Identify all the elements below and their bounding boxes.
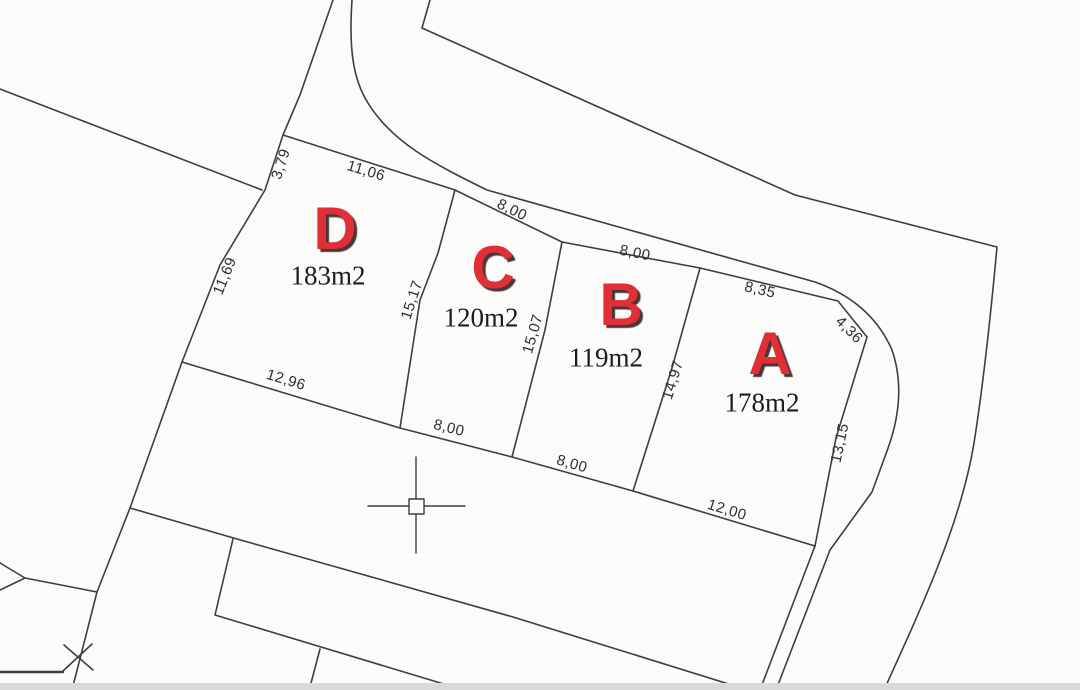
dim-side-ba: 14,97: [659, 358, 687, 401]
dim-bottom-d: 12,96: [264, 366, 307, 394]
dim-right-a: 13,15: [828, 422, 853, 465]
dim-bottom-a: 12,00: [705, 496, 748, 524]
parcel-area-c: 120m2: [443, 305, 518, 332]
plan-labels: A 178m2 B 119m2 C 120m2 D 183m2 3,79 11,…: [0, 0, 1080, 690]
dim-top-a: 8,35: [743, 278, 777, 302]
parcel-letter-a: A: [748, 324, 791, 384]
dim-left-d: 11,69: [210, 255, 240, 297]
cadastral-site-plan: A 178m2 B 119m2 C 120m2 D 183m2 3,79 11,…: [0, 0, 1080, 690]
parcel-letter-c: C: [471, 238, 514, 298]
parcel-area-d: 183m2: [290, 263, 365, 290]
dim-side-cb: 15,07: [519, 312, 546, 355]
parcel-area-a: 178m2: [724, 390, 799, 417]
dim-bottom-b: 8,00: [555, 452, 590, 477]
parcel-letter-b: B: [599, 275, 642, 335]
dim-top-b: 8,00: [618, 242, 652, 265]
dim-side-dc: 15,17: [398, 278, 427, 321]
dim-bottom-c: 8,00: [432, 416, 466, 440]
dim-corner-a: 4,36: [832, 313, 866, 347]
dim-top-left-short: 3,79: [268, 147, 294, 182]
parcel-letter-d: D: [313, 199, 356, 259]
parcel-area-b: 119m2: [569, 345, 643, 372]
dim-top-d: 11,06: [345, 157, 387, 185]
dim-top-c: 8,00: [494, 196, 529, 225]
